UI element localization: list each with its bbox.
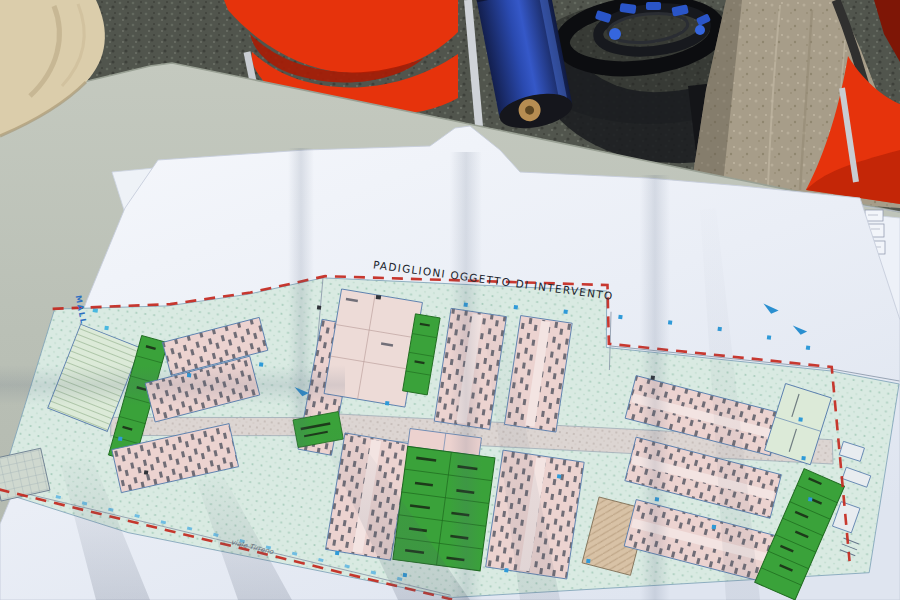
scene-canvas: PADIGLIONI OGGETTO DI INTERVENTO MALL vi… bbox=[0, 0, 900, 600]
photo-site-plan-scene: PADIGLIONI OGGETTO DI INTERVENTO MALL vi… bbox=[0, 0, 900, 600]
